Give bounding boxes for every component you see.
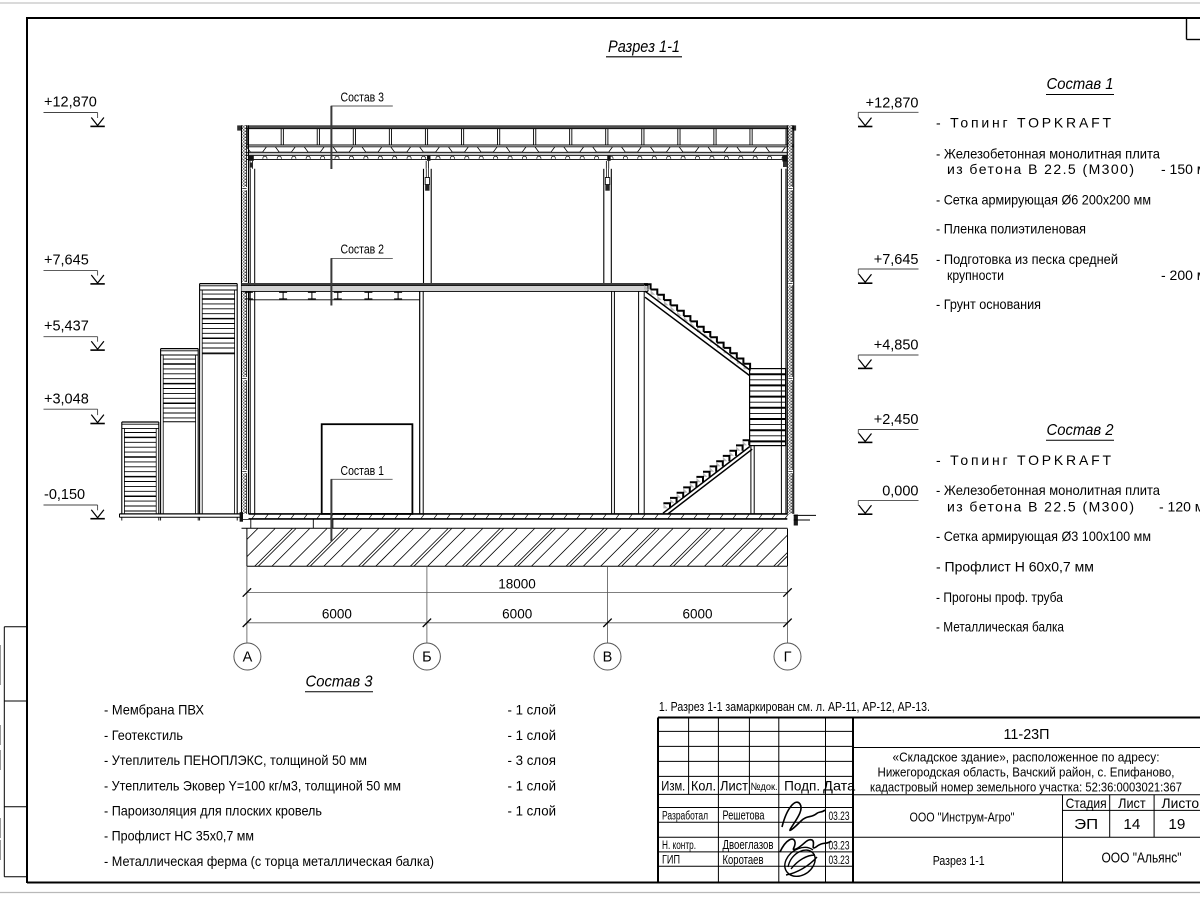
svg-text:03.23: 03.23 [829, 811, 850, 823]
svg-text:- Утеплитель ПЕНОПЛЭКС, толщин: - Утеплитель ПЕНОПЛЭКС, толщиной 50 мм [104, 752, 367, 768]
svg-text:- Топинг TOPKRAFT: - Топинг TOPKRAFT [936, 115, 1111, 131]
svg-text:Состав 1: Состав 1 [1047, 76, 1114, 93]
svg-text:- Прогоны проф. труба: - Прогоны проф. труба [936, 589, 1063, 605]
svg-text:- Пленка полиэтиленовая: - Пленка полиэтиленовая [936, 220, 1086, 236]
svg-text:- 200 мм: - 200 мм [1161, 267, 1200, 283]
svg-text:- Металлическая балка: - Металлическая балка [936, 618, 1064, 634]
svg-text:Кол.: Кол. [691, 777, 716, 793]
svg-text:- 1 слой: - 1 слой [508, 803, 557, 819]
svg-text:Решетова: Решетова [723, 809, 765, 823]
svg-text:03.23: 03.23 [829, 841, 850, 853]
svg-text:Г: Г [784, 650, 792, 666]
svg-text:- Железобетонная монолитная п: - Железобетонная монолитная плита [936, 482, 1160, 498]
svg-text:- 1 слой: - 1 слой [508, 727, 557, 743]
svg-text:Разрез 1-1: Разрез 1-1 [608, 37, 680, 56]
svg-text:В: В [603, 650, 613, 666]
svg-text:Листов: Листов [1162, 795, 1200, 811]
svg-text:+4,850: +4,850 [874, 338, 919, 354]
svg-text:- Топинг TOPKRAFT: - Топинг TOPKRAFT [936, 452, 1111, 468]
svg-text:- 3 слоя: - 3 слоя [508, 752, 557, 768]
svg-text:-0,150: -0,150 [44, 487, 85, 503]
svg-text:- Профлист НС 35х0,7 мм: - Профлист НС 35х0,7 мм [104, 828, 254, 844]
svg-text:+2,450: +2,450 [874, 412, 919, 428]
svg-text:0,000: 0,000 [882, 484, 918, 500]
svg-text:№док.: №док. [751, 781, 778, 793]
svg-text:Состав 2: Состав 2 [341, 242, 385, 256]
svg-text:Подп.: Подп. [784, 777, 820, 793]
svg-text:03.23: 03.23 [829, 855, 850, 867]
svg-text:- 120 мм: - 120 мм [1159, 498, 1200, 514]
svg-text:Б: Б [422, 650, 432, 666]
svg-text:+3,048: +3,048 [44, 391, 89, 407]
svg-text:из бетона В 22.5 (М300): из бетона В 22.5 (М300) [947, 161, 1134, 177]
svg-text:- Грунт основания: - Грунт основания [936, 296, 1041, 312]
svg-text:- Железобетонная монолитная п: - Железобетонная монолитная плита [936, 146, 1160, 162]
svg-text:из бетона В 22.5 (М300): из бетона В 22.5 (М300) [947, 498, 1134, 514]
svg-text:- Геотекстиль: - Геотекстиль [104, 727, 183, 743]
svg-text:ГИП: ГИП [662, 855, 680, 867]
svg-text:Лист: Лист [1118, 795, 1146, 811]
svg-text:1. Разрез 1-1 замаркирован см.: 1. Разрез 1-1 замаркирован см. л. АР-11,… [659, 699, 930, 714]
svg-text:«Складское здание», расположен: «Складское здание», расположенное по адр… [893, 751, 1160, 765]
svg-text:А: А [243, 650, 253, 666]
svg-text:- Подготовка из песка средней: - Подготовка из песка средней [936, 251, 1118, 267]
svg-text:+12,870: +12,870 [44, 95, 97, 111]
svg-text:Двоеглазов: Двоеглазов [723, 838, 774, 852]
svg-text:- Мембрана ПВХ: - Мембрана ПВХ [104, 702, 205, 718]
svg-text:11-23П: 11-23П [1004, 727, 1050, 743]
svg-text:Лист: Лист [720, 777, 749, 793]
svg-text:- Сетка армирующая Ø6 200х200: - Сетка армирующая Ø6 200х200 мм [936, 191, 1151, 207]
svg-text:Состав 3: Состав 3 [341, 90, 385, 104]
svg-text:- Сетка армирующая Ø3 100х100: - Сетка армирующая Ø3 100х100 мм [936, 528, 1151, 544]
svg-text:Нижегородская область, Вачский: Нижегородская область, Вачский район, с.… [878, 766, 1175, 780]
svg-text:- Пароизоляция для плоских кро: - Пароизоляция для плоских кровель [104, 803, 322, 819]
svg-text:Коротаев: Коротаев [723, 853, 764, 867]
svg-text:ООО "Инструм-Агро": ООО "Инструм-Агро" [910, 809, 1015, 824]
svg-text:Состав 3: Состав 3 [306, 673, 373, 690]
svg-text:крупности: крупности [947, 267, 1004, 283]
svg-text:Состав 1: Состав 1 [341, 464, 385, 478]
svg-text:6000: 6000 [682, 606, 712, 621]
svg-text:Разработал: Разработал [662, 810, 708, 822]
svg-text:Разрез 1-1: Разрез 1-1 [933, 853, 985, 868]
svg-text:ЭП: ЭП [1074, 817, 1098, 833]
svg-text:- Металлическая ферма (с торца: - Металлическая ферма (с торца металличе… [104, 853, 434, 869]
svg-text:- Утеплитель Эковер Y=100 кг/м: - Утеплитель Эковер Y=100 кг/м3, толщино… [104, 777, 401, 793]
svg-text:6000: 6000 [502, 606, 532, 621]
svg-text:ООО "Альянс": ООО "Альянс" [1102, 850, 1182, 866]
svg-text:- 1 слой: - 1 слой [508, 777, 557, 793]
svg-text:Состав 2: Состав 2 [1047, 422, 1114, 439]
svg-text:Изм.: Изм. [661, 777, 685, 793]
svg-text:- 1 слой: - 1 слой [508, 702, 557, 718]
svg-text:14: 14 [1123, 817, 1140, 833]
svg-text:Дата: Дата [823, 777, 855, 793]
svg-text:Стадия: Стадия [1066, 795, 1107, 811]
svg-text:- Профлист Н 60х0,7 мм: - Профлист Н 60х0,7 мм [936, 558, 1094, 574]
svg-text:Н. контр.: Н. контр. [662, 840, 696, 852]
svg-text:+7,645: +7,645 [44, 253, 89, 269]
svg-text:- 150 мм: - 150 мм [1161, 161, 1200, 177]
svg-text:+12,870: +12,870 [866, 96, 919, 112]
svg-text:+5,437: +5,437 [44, 319, 89, 335]
svg-text:6000: 6000 [322, 606, 352, 621]
svg-text:19: 19 [1168, 817, 1185, 833]
svg-text:кадастровый номер земельного у: кадастровый номер земельного участка: 52… [870, 781, 1182, 795]
svg-text:+7,645: +7,645 [874, 252, 919, 268]
svg-text:18000: 18000 [498, 576, 536, 591]
